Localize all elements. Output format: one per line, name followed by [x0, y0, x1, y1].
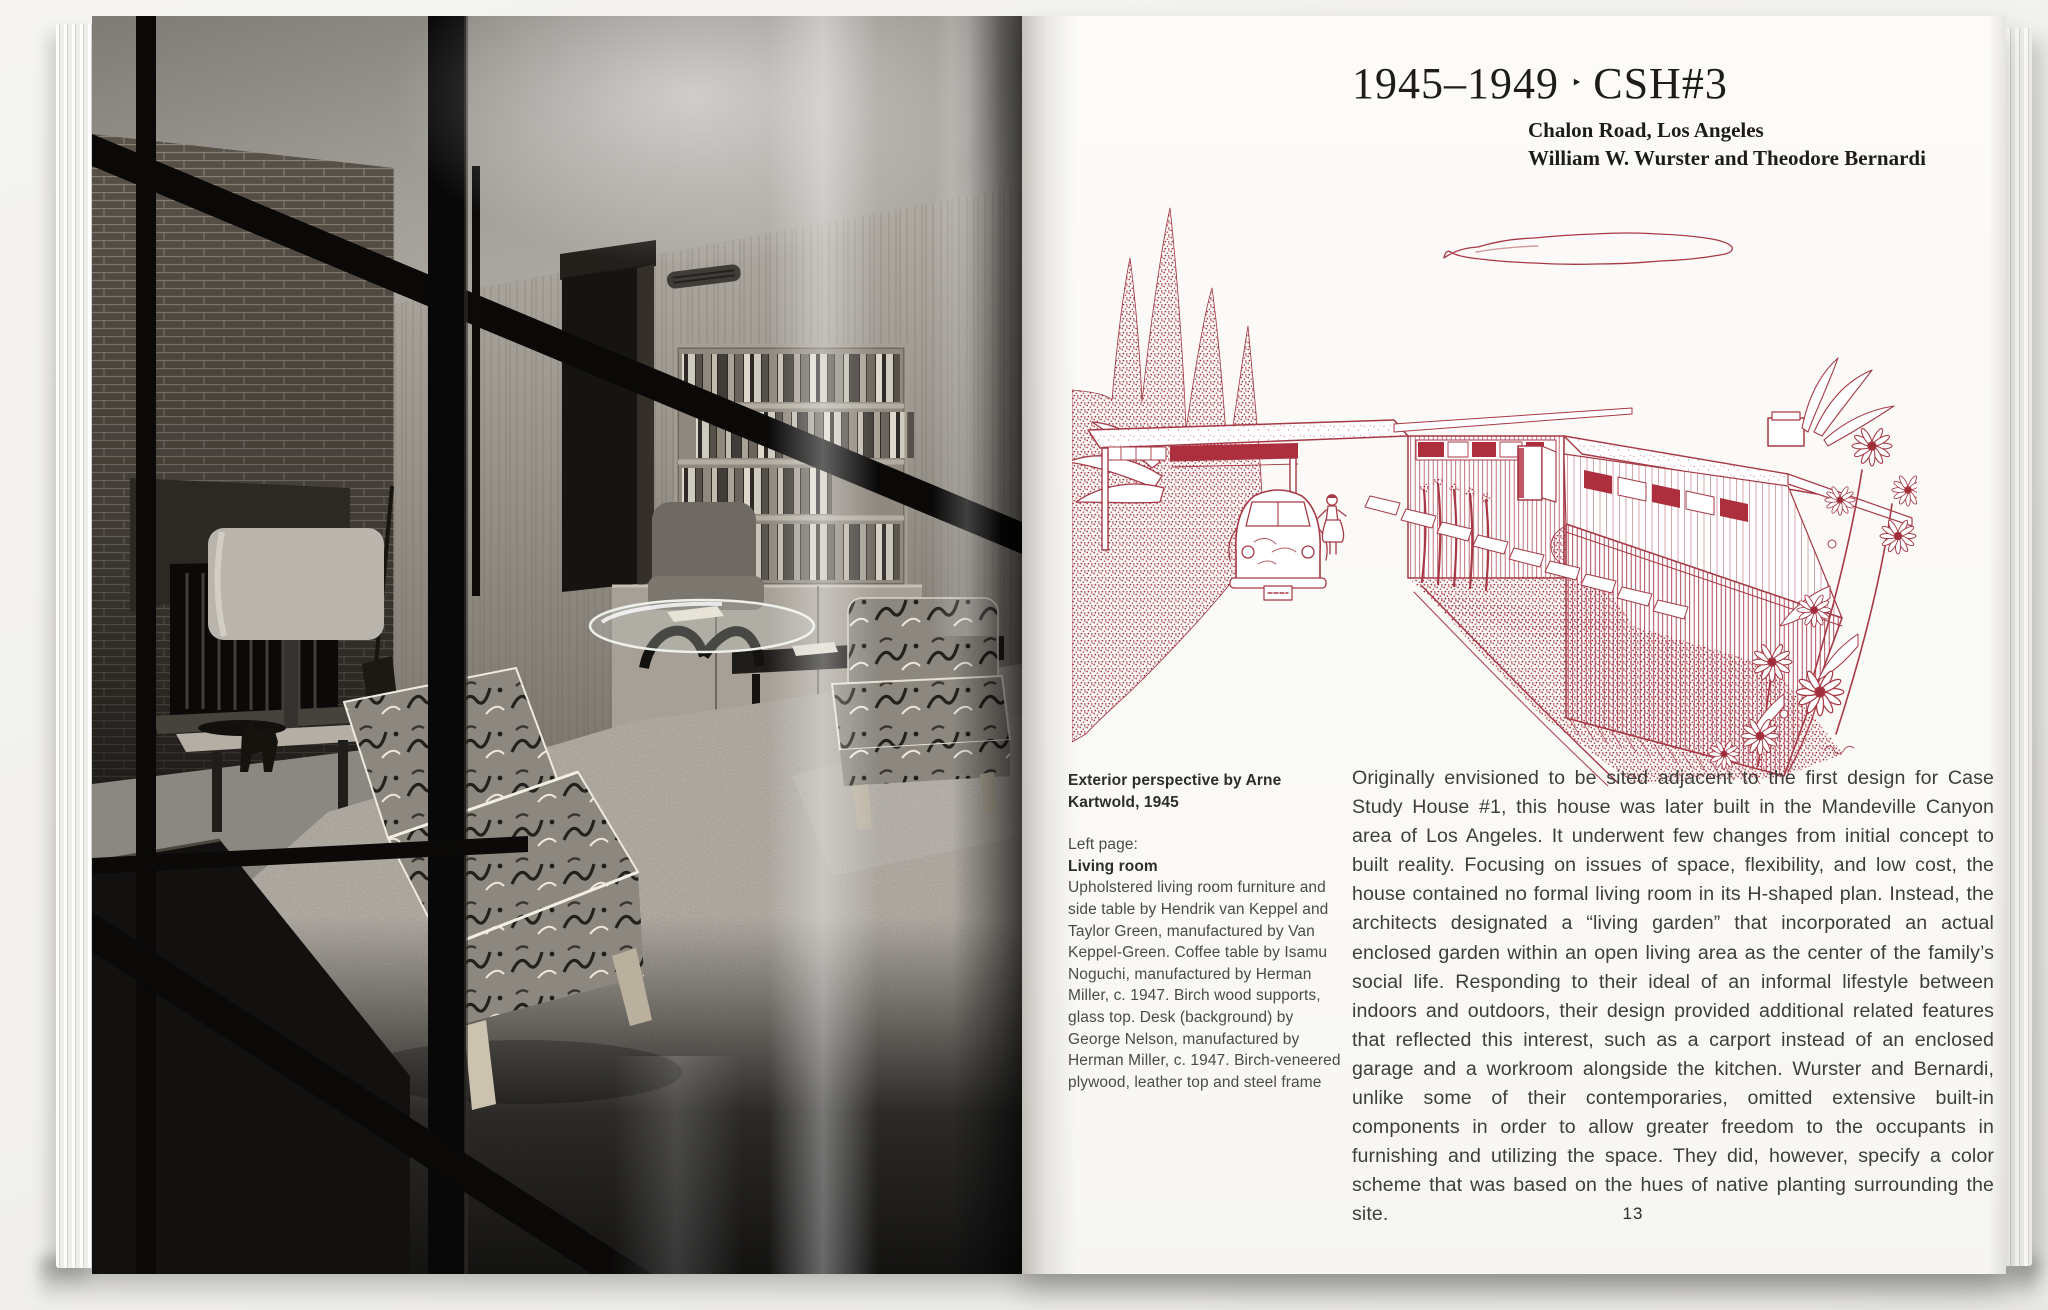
title-years: 1945–1949	[1352, 59, 1559, 108]
living-room-photo	[92, 16, 1022, 1274]
caption-description: Upholstered living room furniture and si…	[1068, 877, 1346, 1093]
subtitle-address: Chalon Road, Los Angeles	[1528, 116, 1926, 144]
right-page: 1945–1949‣CSH#3 Chalon Road, Los Angeles…	[1022, 16, 2006, 1274]
caption-left-page-label: Left page:	[1068, 834, 1346, 856]
chapter-subtitle: Chalon Road, Los Angeles William W. Wurs…	[1528, 116, 1926, 172]
house-perspective-illustration	[1072, 194, 1917, 786]
subtitle-architects: William W. Wurster and Theodore Bernardi	[1528, 144, 1926, 172]
caption-photo-title: Living room	[1068, 856, 1346, 878]
title-code: CSH#3	[1593, 59, 1728, 108]
left-page-stack	[56, 24, 92, 1268]
left-page	[92, 16, 1022, 1274]
chapter-title: 1945–1949‣CSH#3	[1352, 58, 1728, 109]
page-number: 13	[1312, 1204, 1954, 1224]
right-page-stack	[2006, 28, 2032, 1266]
body-text: Originally envisioned to be sited adjace…	[1352, 764, 1994, 1230]
photo-caption-column: Exterior perspective by Arne Kartwold, 1…	[1068, 770, 1346, 1093]
title-separator-icon: ‣	[1571, 72, 1583, 94]
illustration-credit: Exterior perspective by Arne Kartwold, 1…	[1068, 770, 1346, 813]
book-spread: 1945–1949‣CSH#3 Chalon Road, Los Angeles…	[0, 0, 2048, 1310]
